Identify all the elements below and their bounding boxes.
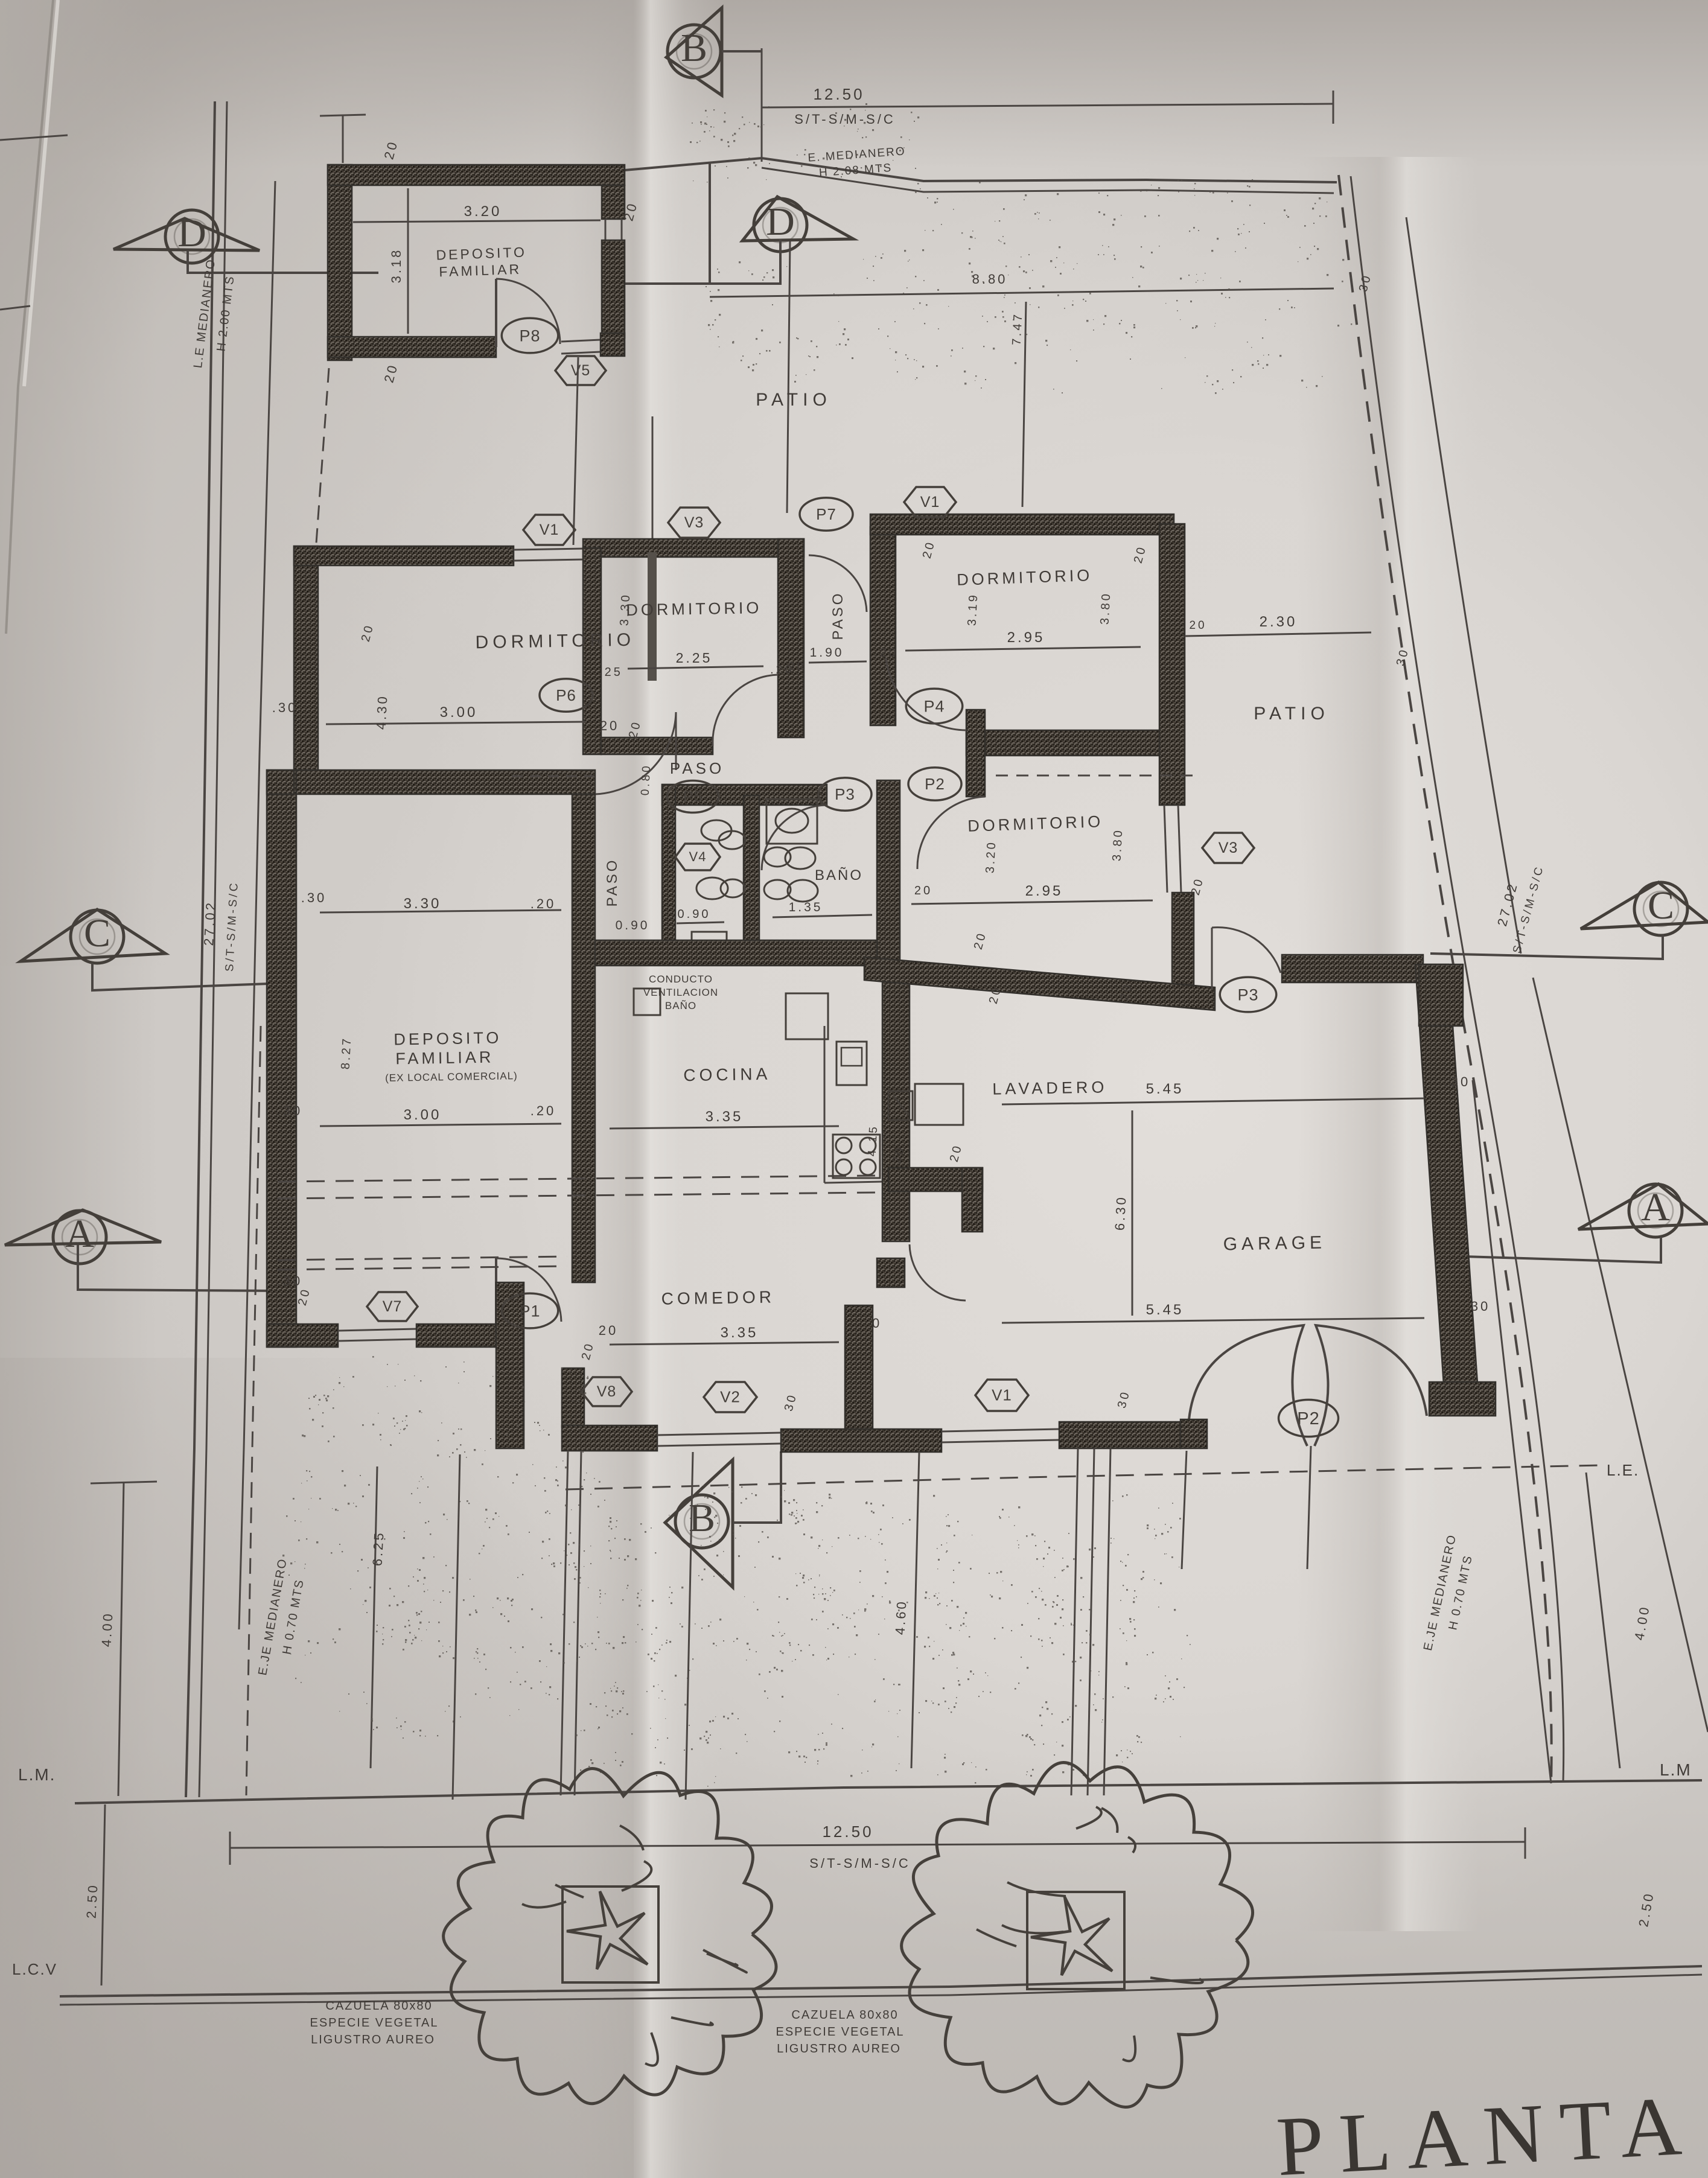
svg-text:LIGUSTRO AUREO: LIGUSTRO AUREO [311, 2033, 435, 2046]
svg-text:P1: P1 [519, 1302, 540, 1320]
svg-text:V2: V2 [720, 1388, 741, 1406]
svg-text:12.50: 12.50 [813, 85, 864, 103]
svg-text:8.80: 8.80 [972, 272, 1008, 287]
svg-text:.30: .30 [277, 1273, 303, 1288]
svg-text:DEPOSITO: DEPOSITO [436, 244, 527, 263]
svg-text:B: B [681, 26, 707, 70]
svg-text:3.30: 3.30 [404, 896, 442, 912]
svg-text:27.02: 27.02 [201, 900, 218, 946]
svg-text:L.M.: L.M. [18, 1765, 56, 1784]
svg-text:3.00: 3.00 [440, 704, 478, 721]
svg-text:0.80: 0.80 [639, 763, 654, 796]
svg-text:PATIO: PATIO [1254, 704, 1330, 724]
svg-text:PASO: PASO [670, 759, 724, 777]
svg-text:20: 20 [1189, 619, 1206, 632]
svg-text:2.50: 2.50 [83, 1883, 100, 1919]
svg-text:P2: P2 [925, 775, 945, 793]
svg-text:P8: P8 [519, 326, 540, 345]
svg-text:.30: .30 [272, 700, 298, 715]
svg-text:V4: V4 [689, 849, 707, 864]
svg-text:L.C.V: L.C.V [12, 1960, 57, 1978]
svg-text:2.25: 2.25 [676, 650, 713, 666]
svg-text:D: D [177, 211, 206, 255]
svg-text:ESPECIE VEGETAL: ESPECIE VEGETAL [310, 2016, 438, 2030]
svg-text:D: D [766, 200, 795, 244]
svg-text:P3: P3 [835, 785, 855, 803]
svg-text:3.35: 3.35 [721, 1325, 759, 1341]
svg-text:P3: P3 [1237, 986, 1258, 1004]
svg-text:S/T-S/M-S/C: S/T-S/M-S/C [809, 1856, 910, 1871]
svg-text:.20: .20 [783, 660, 805, 672]
svg-text:.30: .30 [301, 890, 327, 905]
svg-text:CAZUELA 80x80: CAZUELA 80x80 [325, 1999, 432, 2013]
svg-text:.20: .20 [874, 646, 898, 660]
svg-text:5.45: 5.45 [1146, 1302, 1184, 1318]
svg-text:V5: V5 [571, 362, 591, 379]
svg-text:P6: P6 [556, 686, 576, 704]
svg-text:A: A [1641, 1185, 1670, 1229]
svg-text:3.00: 3.00 [404, 1107, 442, 1123]
svg-text:20: 20 [599, 1323, 618, 1338]
svg-text:V8: V8 [597, 1383, 617, 1400]
svg-text:PASO: PASO [830, 591, 846, 640]
svg-text:3.35: 3.35 [706, 1109, 744, 1125]
svg-text:V1: V1 [992, 1386, 1012, 1404]
svg-text:L.E.: L.E. [1607, 1461, 1639, 1479]
svg-text:FAMILIAR: FAMILIAR [439, 261, 522, 280]
svg-text:1.90: 1.90 [810, 646, 844, 660]
svg-text:3.18: 3.18 [389, 248, 404, 284]
svg-text:3.20: 3.20 [464, 203, 502, 220]
svg-text:LAVADERO: LAVADERO [992, 1078, 1108, 1098]
svg-text:L.M: L.M [1660, 1760, 1692, 1779]
svg-text:3.80: 3.80 [1098, 591, 1114, 625]
svg-text:PASO: PASO [604, 858, 620, 907]
svg-text:.30: .30 [277, 1103, 303, 1118]
svg-text:2.95: 2.95 [1007, 629, 1045, 646]
svg-text:DEPOSITO: DEPOSITO [394, 1028, 502, 1048]
svg-text:P2: P2 [1297, 1409, 1319, 1428]
svg-text:6.30: 6.30 [1112, 1195, 1129, 1231]
svg-text:V1: V1 [920, 494, 940, 511]
svg-text:5.45: 5.45 [1146, 1081, 1184, 1097]
svg-text:V1: V1 [540, 521, 559, 538]
svg-text:FAMILIAR: FAMILIAR [395, 1048, 494, 1068]
svg-text:3.20: 3.20 [984, 840, 999, 874]
svg-text:C: C [1648, 884, 1674, 928]
svg-text:V3: V3 [1219, 839, 1238, 856]
svg-text:ESPECIE VEGETAL: ESPECIE VEGETAL [776, 2025, 904, 2039]
svg-text:.30: .30 [1465, 1299, 1491, 1314]
svg-text:COCINA: COCINA [683, 1065, 771, 1085]
svg-text:20: 20 [914, 884, 932, 897]
svg-text:3.19: 3.19 [966, 593, 981, 626]
svg-text:3.30: 3.30 [618, 593, 633, 626]
svg-text:.20: .20 [531, 896, 556, 911]
svg-text:0.90: 0.90 [616, 919, 650, 932]
svg-text:12.50: 12.50 [822, 1823, 873, 1841]
svg-text:BAÑO: BAÑO [815, 867, 863, 884]
svg-text:4.30: 4.30 [373, 694, 390, 730]
svg-text:CAZUELA 80x80: CAZUELA 80x80 [791, 2008, 898, 2022]
svg-text:DORMITORIO: DORMITORIO [475, 630, 635, 653]
svg-text:COMEDOR: COMEDOR [661, 1287, 775, 1308]
svg-text:BAÑO: BAÑO [665, 1000, 696, 1011]
svg-text:0.90: 0.90 [678, 908, 711, 921]
svg-text:.20: .20 [594, 718, 620, 733]
svg-text:.30: .30 [1445, 1074, 1471, 1089]
svg-text:2.30: 2.30 [1260, 614, 1298, 630]
svg-text:.20: .20 [531, 1103, 556, 1118]
svg-text:P7: P7 [816, 505, 836, 523]
svg-text:C: C [84, 911, 110, 955]
svg-text:GARAGE: GARAGE [1223, 1233, 1326, 1255]
svg-text:A: A [65, 1212, 94, 1256]
svg-text:PATIO: PATIO [756, 390, 832, 410]
svg-text:7.47: 7.47 [1010, 312, 1025, 346]
svg-text:8.27: 8.27 [339, 1036, 354, 1070]
svg-text:LIGUSTRO AUREO: LIGUSTRO AUREO [777, 2042, 901, 2055]
svg-text:DORMITORIO: DORMITORIO [626, 599, 762, 619]
svg-text:4.00: 4.00 [98, 1611, 115, 1648]
svg-text:P5: P5 [683, 789, 703, 806]
svg-text:6.25: 6.25 [369, 1530, 386, 1567]
svg-text:2.95: 2.95 [1025, 883, 1063, 899]
svg-text:CONDUCTO: CONDUCTO [649, 973, 713, 985]
svg-text:(EX LOCAL COMERCIAL): (EX LOCAL COMERCIAL) [385, 1070, 518, 1084]
svg-text:V7: V7 [383, 1298, 403, 1315]
svg-text:1.35: 1.35 [789, 900, 823, 914]
svg-text:4.60: 4.60 [892, 1599, 909, 1635]
svg-text:P4: P4 [923, 697, 945, 715]
svg-text:V3: V3 [684, 514, 704, 531]
svg-text:3.80: 3.80 [1111, 828, 1126, 862]
svg-text:.25: .25 [599, 666, 623, 679]
